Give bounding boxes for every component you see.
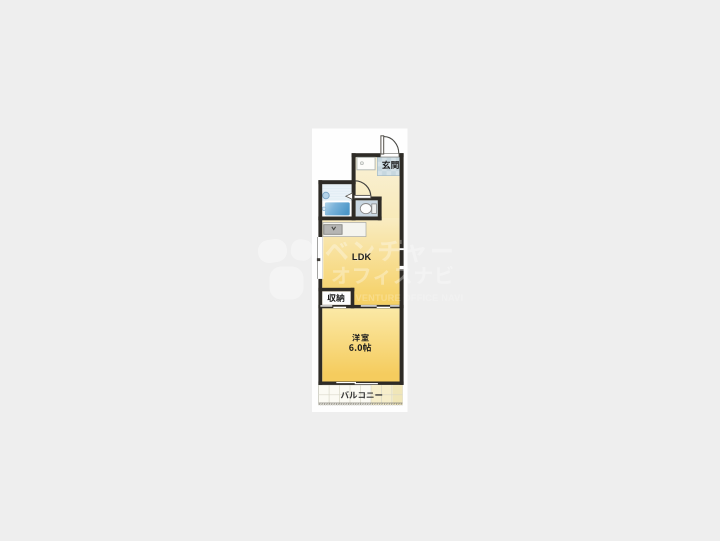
- svg-text:LDK: LDK: [352, 252, 372, 262]
- svg-text:VENTURE OFFICE NAVI: VENTURE OFFICE NAVI: [356, 293, 464, 303]
